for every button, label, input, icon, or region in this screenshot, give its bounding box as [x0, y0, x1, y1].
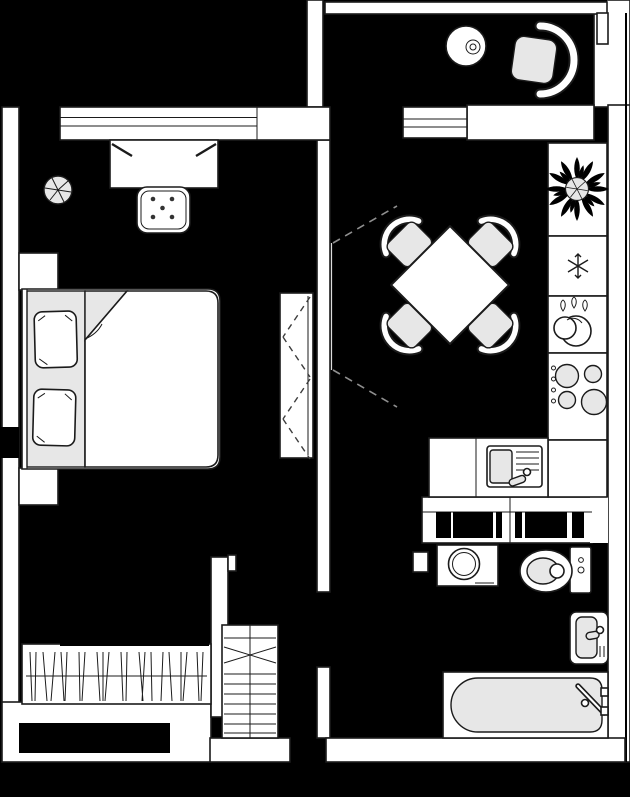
top-right-notch	[597, 13, 608, 44]
round-table	[446, 26, 486, 66]
kitchen-sink	[487, 446, 542, 487]
built-in-closet	[22, 637, 211, 704]
desk	[110, 140, 218, 188]
stool	[137, 187, 190, 233]
bathroom-stub	[413, 552, 428, 572]
bathtub	[443, 672, 608, 738]
wardrobe	[280, 293, 313, 459]
nightstand-top	[19, 253, 58, 290]
kitchen-top-wall	[467, 105, 594, 140]
nightstand-bottom	[19, 468, 58, 505]
pillow-right	[33, 389, 76, 446]
bedroom-window	[60, 107, 330, 140]
duvet	[85, 291, 218, 467]
balcony-top-wall	[325, 2, 607, 14]
left-wall-pier	[0, 427, 19, 458]
staircase	[222, 625, 278, 738]
corridor-band	[326, 738, 625, 762]
double-bed	[22, 289, 220, 469]
partition-upper	[307, 0, 323, 107]
counter-empty	[548, 440, 607, 497]
pillow-left	[34, 311, 77, 368]
floor-plan	[0, 0, 630, 800]
partition-lower	[317, 667, 330, 738]
sink-counter	[429, 438, 548, 497]
toilet	[520, 547, 591, 593]
dining-table	[375, 210, 524, 359]
balcony-slab	[19, 723, 170, 753]
hall-wall-notch	[228, 555, 236, 571]
entry-landing	[210, 738, 290, 762]
balcony-window	[403, 107, 467, 138]
vent-shaft	[422, 497, 608, 543]
partition-main	[317, 140, 330, 592]
counter-column	[545, 143, 609, 497]
wash-basin	[570, 612, 608, 664]
right-wall-line	[625, 13, 627, 762]
washing-machine	[437, 545, 498, 586]
